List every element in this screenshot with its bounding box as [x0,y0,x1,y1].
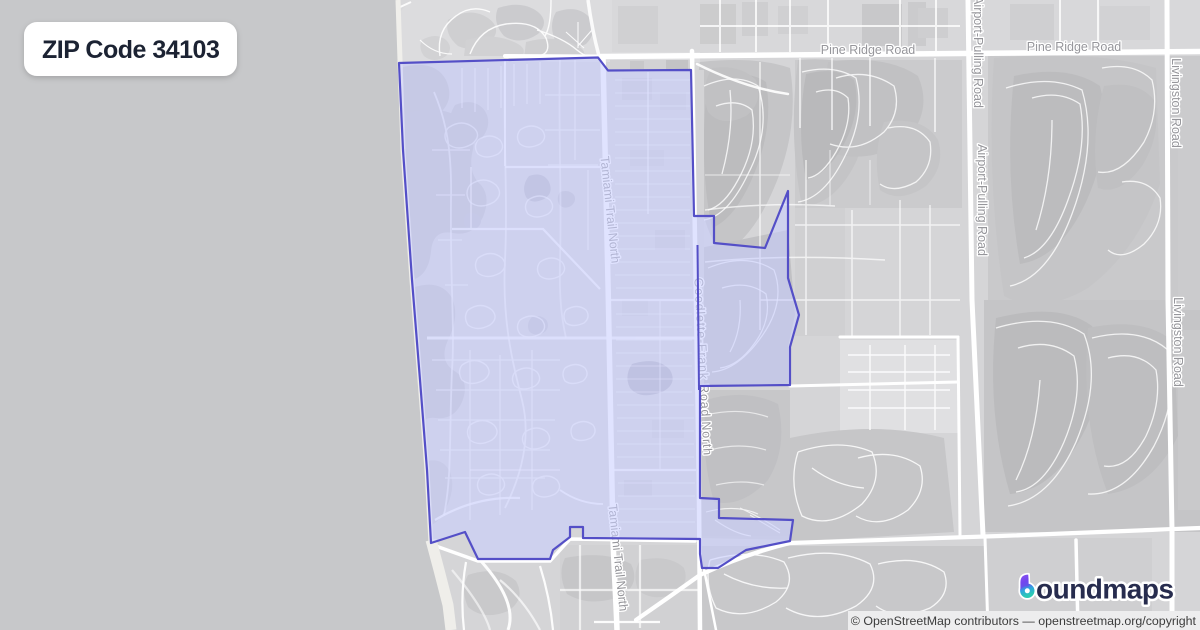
svg-text:© OpenStreetMap contributors —: © OpenStreetMap contributors — openstree… [851,614,1197,628]
svg-text:Livingston Road: Livingston Road [1169,58,1183,148]
svg-text:Airport-Pulling Road: Airport-Pulling Road [975,144,989,256]
svg-text:Pine Ridge Road: Pine Ridge Road [821,43,916,57]
svg-text:oundmaps: oundmaps [1036,574,1174,605]
svg-text:ZIP Code 34103: ZIP Code 34103 [42,36,219,64]
svg-text:Airport-Pulling Road: Airport-Pulling Road [971,0,985,108]
svg-text:Pine Ridge Road: Pine Ridge Road [1027,40,1122,54]
svg-text:Livingston Road: Livingston Road [1171,297,1185,387]
